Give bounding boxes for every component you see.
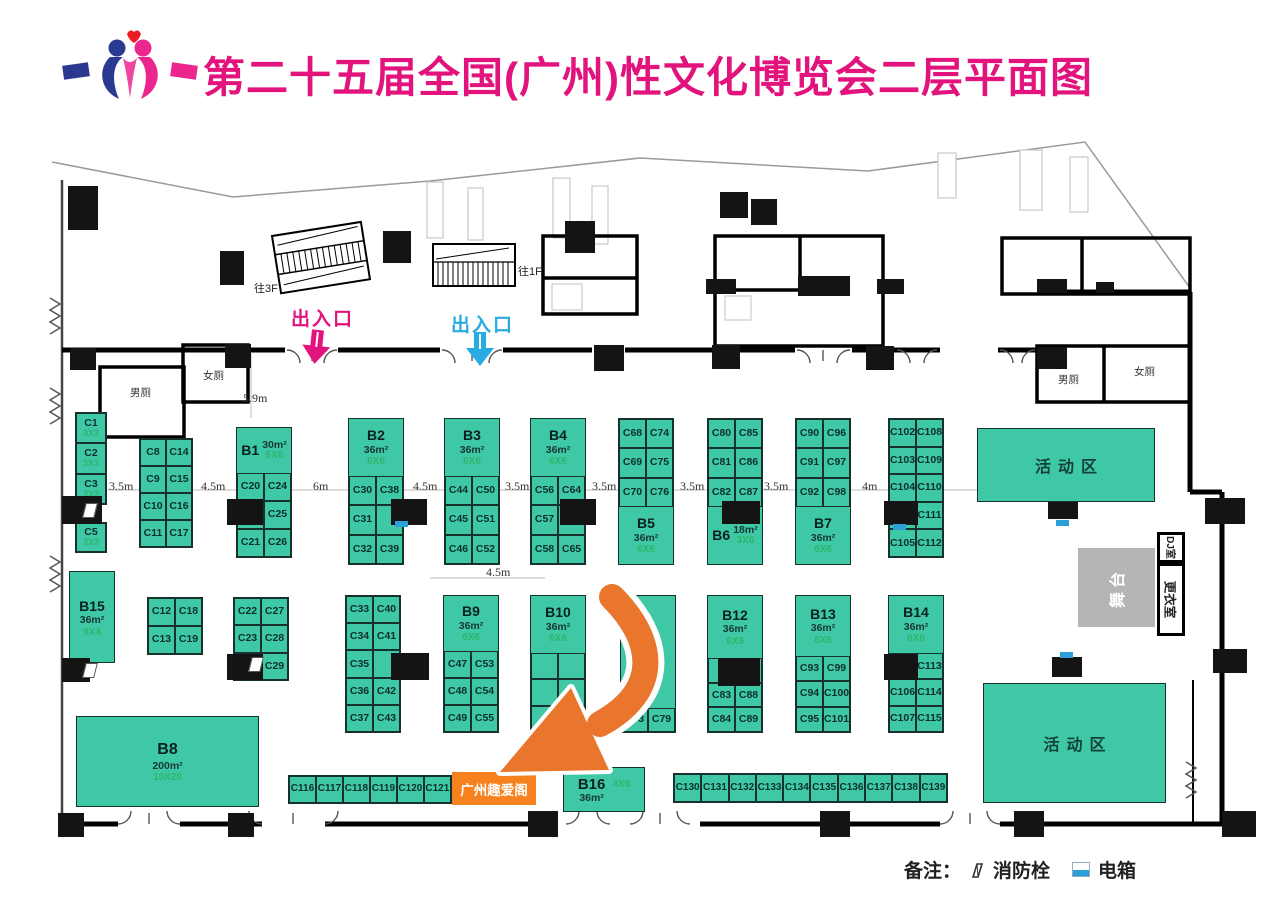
booth-row: C69C75 (619, 448, 673, 477)
booth-C110: C110 (916, 474, 943, 502)
dj-room: DJ室 (1157, 532, 1185, 563)
dimension-label: 3.5m (680, 479, 704, 494)
booth-row: C32C39 (349, 535, 403, 564)
booth-C30: C30 (349, 476, 376, 505)
booth-row: C102C108 (889, 419, 943, 447)
entrance-label-pink: 出入口 (291, 304, 354, 331)
booth-C12: C12 (148, 598, 175, 626)
booth-C117: C117 (316, 776, 343, 803)
changing-room: 更衣室 (1157, 563, 1185, 636)
booth-B11-header: B1172m²12X6 (621, 596, 675, 708)
booth-C20: C20 (237, 473, 264, 501)
booth-row: C70C76 (619, 478, 673, 507)
booth-row: C53X3 (76, 523, 106, 552)
block-rows: C93C99C94C100C95C101 (796, 656, 850, 732)
block-B10: B1036m²6X6 (530, 595, 586, 733)
booth-C90: C90 (796, 419, 823, 448)
booth-C120: C120 (397, 776, 424, 803)
booth-C107: C107 (889, 706, 916, 732)
toilet-male-right: 男厕 (1058, 372, 1079, 387)
booth-row: C23C28 (234, 625, 288, 652)
pillar (1205, 498, 1245, 524)
booth-row: C23X3 (76, 443, 106, 473)
dimension-label: 4.5m (201, 479, 225, 494)
booth-C132: C132 (729, 774, 756, 802)
block-rows: C90C96C91C97C92C98 (796, 419, 850, 507)
logo-ribbon-right (170, 62, 198, 79)
booth-C138: C138 (892, 774, 919, 802)
power-box-mark (395, 521, 408, 527)
pillar (560, 499, 596, 525)
legend-power-label: 电箱 (1098, 856, 1136, 883)
booth-C98: C98 (823, 478, 850, 507)
block-B1: B130m²5X6C20C24C25C21C26 (236, 427, 292, 558)
booth-B14-header: B1436m²6X6 (889, 596, 943, 653)
booth-C76: C76 (646, 478, 673, 507)
booth-row (531, 706, 585, 732)
booth-C112: C112 (916, 529, 943, 557)
booth-C70: C70 (619, 478, 646, 507)
booth-C46: C46 (445, 535, 472, 564)
power-box-mark (893, 524, 906, 530)
booth-C83: C83 (708, 683, 735, 708)
booth-row: C58C65 (531, 535, 585, 564)
booth-empty-cell (531, 706, 558, 732)
pillar (70, 348, 96, 370)
booth-C2: C23X3 (76, 443, 106, 473)
booth-row: C80C85 (708, 419, 762, 448)
booth-empty-cell (531, 679, 558, 705)
stairs-1f (433, 244, 515, 286)
logo-heart (127, 30, 141, 43)
booth-C8: C8 (140, 439, 166, 466)
booth-C96: C96 (823, 419, 850, 448)
pillar (722, 501, 760, 524)
booth-C79: C79 (648, 708, 675, 732)
pillar (1014, 811, 1044, 837)
booth-C133: C133 (756, 774, 783, 802)
booth-row: C90C96 (796, 419, 850, 448)
booth-C1: C13X3 (76, 413, 106, 443)
qag-booth: 广州趣爱阁 (452, 772, 536, 805)
booth-C91: C91 (796, 448, 823, 477)
booth-row: C105C112 (889, 529, 943, 557)
block-B9: B936m²6X6C47C53C48C54C49C55 (443, 595, 499, 733)
pillar (712, 345, 740, 369)
entrance-arrow-blue-icon (466, 332, 494, 366)
stage: 舞台 (1078, 548, 1155, 627)
booth-C88: C88 (735, 683, 762, 708)
booth-C23: C23 (234, 625, 261, 652)
block-c1-col: C13X3C23X3C33X3 (75, 412, 107, 505)
booth-C33: C33 (346, 596, 373, 623)
booth-B2-header: B236m²6X6 (349, 419, 403, 476)
booth-C50: C50 (472, 476, 499, 505)
block-rows: C13X3C23X3C33X3 (76, 413, 106, 504)
booth-C135: C135 (810, 774, 837, 802)
booth-B1-header: B130m²5X6 (237, 428, 291, 473)
pillar (884, 654, 918, 680)
booth-row: C48C54 (444, 678, 498, 705)
stairs-1f-label: 往1F (518, 263, 542, 279)
block-B13: B1336m²6X6C93C99C94C100C95C101 (795, 595, 851, 733)
booth-row: C9C15 (140, 466, 192, 493)
dimension-label: 3.5m (764, 479, 788, 494)
pillar (1222, 811, 1256, 837)
booth-C42: C42 (373, 678, 400, 705)
legend: 备注： 消防栓 电箱 (904, 856, 1136, 883)
fire-hydrant-mark (82, 663, 98, 678)
entrance-label-blue: 出入口 (451, 310, 514, 337)
booth-C31: C31 (349, 505, 376, 534)
booth-row: C33C40 (346, 596, 400, 623)
pillar (227, 499, 263, 525)
pillar (720, 192, 748, 218)
booth-row: C10C16 (140, 493, 192, 520)
booth-C113: C113 (916, 653, 943, 679)
booth-C109: C109 (916, 447, 943, 475)
booth-C131: C131 (701, 774, 728, 802)
dimension-label: 4m (862, 479, 877, 494)
booth-row: C20C24 (237, 473, 291, 501)
booth-strip-1: C130C131C132C133C134C135C136C137C138C139 (673, 773, 948, 803)
pillar (877, 279, 904, 294)
pillar (706, 279, 736, 294)
booth-C102: C102 (889, 419, 916, 447)
block-rows: C80C85C81C86C82C87 (708, 419, 762, 507)
toilet-female-right: 女厕 (1134, 364, 1155, 379)
booth-C134: C134 (783, 774, 810, 802)
block-B2: B236m²6X6C30C38C31C32C39 (348, 418, 404, 565)
booth-C95: C95 (796, 707, 823, 732)
booth-C43: C43 (373, 705, 400, 732)
logo-figures (102, 30, 158, 99)
duct-shapes (427, 150, 1088, 244)
block-B4: B436m²6X6C56C64C57C58C65 (530, 418, 586, 565)
block-B7: C90C96C91C97C92C98B736m²6X6 (795, 418, 851, 565)
activity-area-top: 活动区 (977, 428, 1155, 502)
booth-C80: C80 (708, 419, 735, 448)
booth-C105: C105 (889, 529, 916, 557)
block-rows (531, 653, 585, 732)
dimension-label: 4.5m (413, 479, 437, 494)
booth-C26: C26 (264, 529, 291, 557)
booth-row: C37C43 (346, 705, 400, 732)
block-c8-blk: C8C14C9C15C10C16C11C17 (139, 438, 193, 548)
stairs-3f-label: 往3F (254, 280, 278, 296)
booth-C108: C108 (916, 419, 943, 447)
block-rows: C44C50C45C51C46C52 (445, 476, 499, 564)
power-box-mark (1060, 652, 1073, 658)
booth-row: C34C41 (346, 623, 400, 650)
pillar (1213, 649, 1247, 673)
booth-C58: C58 (531, 535, 558, 564)
booth-C116: C116 (289, 776, 316, 803)
booth-C139: C139 (920, 774, 947, 802)
booth-B15-header: B1536m²9X4 (70, 572, 114, 664)
booth-C52: C52 (472, 535, 499, 564)
booth-C19: C19 (175, 626, 202, 654)
booth-C41: C41 (373, 623, 400, 650)
booth-empty-cell (558, 706, 585, 732)
booth-C121: C121 (424, 776, 451, 803)
booth-C100: C100 (823, 681, 850, 706)
block-B5: C68C74C69C75C70C76B536m²6X6 (618, 418, 674, 565)
booth-row: C95C101 (796, 707, 850, 732)
booth-row: C13C19 (148, 626, 202, 654)
pillar (594, 345, 624, 371)
pillar (225, 344, 251, 368)
booth-row: C103C109 (889, 447, 943, 475)
booth-C16: C16 (166, 493, 192, 520)
booth-C27: C27 (261, 598, 288, 625)
booth-C118: C118 (343, 776, 370, 803)
pillar (1096, 282, 1114, 293)
dimension-label: 6m (313, 479, 328, 494)
block-B11: B1172m²12X6C73C79 (620, 595, 676, 733)
pillar (866, 346, 894, 370)
booth-row: C92C98 (796, 478, 850, 507)
booth-C39: C39 (376, 535, 403, 564)
booth-row: C83C88 (708, 683, 762, 708)
booth-C18: C18 (175, 598, 202, 626)
stairs-3f (272, 222, 370, 293)
pillar (383, 231, 411, 263)
booth-C44: C44 (445, 476, 472, 505)
pillar (820, 811, 850, 837)
booth-C55: C55 (471, 705, 498, 732)
booth-row: C21C26 (237, 529, 291, 557)
booth-B4-header: B436m²6X6 (531, 419, 585, 476)
booth-row: C93C99 (796, 656, 850, 681)
booth-row: C84C89 (708, 707, 762, 732)
corridor-door-arcs (287, 350, 1035, 363)
booth-C53: C53 (471, 651, 498, 678)
block-c12-blk: C12C18C13C19 (147, 597, 203, 655)
booth-row: C12C18 (148, 598, 202, 626)
booth-C89: C89 (735, 707, 762, 732)
block-B16: B1636m²4X9 (563, 767, 645, 812)
booth-B3-header: B336m²6X6 (445, 419, 499, 476)
booth-row: C106C114 (889, 679, 943, 705)
booth-row: C81C86 (708, 448, 762, 477)
dimension-label: 3.5m (592, 479, 616, 494)
booth-C114: C114 (916, 679, 943, 705)
block-c5: C53X3 (75, 522, 107, 553)
booth-C35: C35 (346, 650, 373, 677)
booth-C99: C99 (823, 656, 850, 681)
toilet-female-left: 女厕 (203, 368, 224, 383)
booth-C84: C84 (708, 707, 735, 732)
booth-C137: C137 (865, 774, 892, 802)
block-B8: B8200m²10X20 (76, 716, 259, 807)
pillar (220, 251, 244, 285)
booth-C28: C28 (261, 625, 288, 652)
booth-C15: C15 (166, 466, 192, 493)
booth-row: C11C17 (140, 520, 192, 547)
booth-B16-header: B1636m²4X9 (564, 768, 644, 813)
block-B15: B1536m²9X4 (69, 571, 115, 663)
dimension-label: 5.9m (243, 391, 267, 406)
booth-C17: C17 (166, 520, 192, 547)
booth-C93: C93 (796, 656, 823, 681)
booth-C74: C74 (646, 419, 673, 448)
booth-C25: C25 (264, 501, 291, 529)
booth-C101: C101 (823, 707, 850, 732)
booth-row: C104C110 (889, 474, 943, 502)
booth-C45: C45 (445, 505, 472, 534)
dimension-label: 4.5m (486, 565, 510, 580)
service-rooms (543, 236, 1190, 346)
fire-hydrant-icon (969, 861, 985, 879)
dimension-label: 3.5m (505, 479, 529, 494)
booth-C13: C13 (148, 626, 175, 654)
pillar (1048, 500, 1078, 519)
booth-C115: C115 (916, 706, 943, 732)
booth-C36: C36 (346, 678, 373, 705)
booth-C119: C119 (370, 776, 397, 803)
booth-C81: C81 (708, 448, 735, 477)
booth-row: C46C52 (445, 535, 499, 564)
booth-B13-header: B1336m²6X6 (796, 596, 850, 656)
booth-empty-cell (558, 653, 585, 679)
booth-C34: C34 (346, 623, 373, 650)
booth-C73: C73 (621, 708, 648, 732)
block-rows: C102C108C103C109C104C110C111C105C112 (889, 419, 943, 557)
booth-B12-header: B1236m²6X6 (708, 596, 762, 658)
booth-row (531, 679, 585, 705)
booth-row: C22C27 (234, 598, 288, 625)
block-rows: C8C14C9C15C10C16C11C17 (140, 439, 192, 547)
booth-C97: C97 (823, 448, 850, 477)
booth-row: C8C14 (140, 439, 192, 466)
booth-B10-header: B1036m²6X6 (531, 596, 585, 653)
booth-C11: C11 (140, 520, 166, 547)
block-c102-blk: C102C108C103C109C104C110C111C105C112 (888, 418, 944, 558)
pillar (884, 501, 918, 525)
booth-C14: C14 (166, 439, 192, 466)
booth-empty-cell (558, 679, 585, 705)
activity-area-bottom: 活动区 (983, 683, 1166, 803)
booth-C10: C10 (140, 493, 166, 520)
booth-C68: C68 (619, 419, 646, 448)
block-rows: C68C74C69C75C70C76 (619, 419, 673, 507)
booth-row: C36C42 (346, 678, 400, 705)
booth-C47: C47 (444, 651, 471, 678)
toilet-male-left: 男厕 (130, 385, 151, 400)
booth-C57: C57 (531, 505, 558, 534)
dimension-label: 3.5m (109, 479, 133, 494)
pillar (68, 186, 98, 230)
booth-C65: C65 (558, 535, 585, 564)
booth-C130: C130 (674, 774, 701, 802)
booth-row: C13X3 (76, 413, 106, 443)
booth-C85: C85 (735, 419, 762, 448)
pillar (228, 813, 254, 837)
booth-C21: C21 (237, 529, 264, 557)
booth-C37: C37 (346, 705, 373, 732)
booth-row: C91C97 (796, 448, 850, 477)
booth-C29: C29 (261, 653, 288, 680)
pillar (391, 653, 429, 680)
booth-row: C68C74 (619, 419, 673, 448)
booth-B5-header: B536m²6X6 (619, 507, 673, 564)
booth-C24: C24 (264, 473, 291, 501)
block-rows: C53X3 (76, 523, 106, 552)
block-rows: C73C79 (621, 708, 675, 732)
legend-note-label: 备注： (904, 856, 961, 883)
block-B6: C80C85C81C86C82C87B618m²3X6 (707, 418, 763, 565)
pillar (751, 199, 777, 225)
pillar (528, 811, 558, 837)
booth-C48: C48 (444, 678, 471, 705)
block-rows: C47C53C48C54C49C55 (444, 651, 498, 732)
booth-row: C94C100 (796, 681, 850, 706)
booth-B9-header: B936m²6X6 (444, 596, 498, 651)
booth-row: C44C50 (445, 476, 499, 505)
booth-B8-header: B8200m²10X20 (77, 717, 258, 808)
page-title: 第二十五届全国(广州)性文化博览会二层平面图 (203, 44, 1193, 105)
booth-C136: C136 (838, 774, 865, 802)
booth-C94: C94 (796, 681, 823, 706)
booth-row: C45C51 (445, 505, 499, 534)
booth-C75: C75 (646, 448, 673, 477)
booth-C54: C54 (471, 678, 498, 705)
booth-row: C49C55 (444, 705, 498, 732)
booth-C92: C92 (796, 478, 823, 507)
booth-row: C47C53 (444, 651, 498, 678)
block-B3: B336m²6X6C44C50C45C51C46C52 (444, 418, 500, 565)
power-box-icon (1072, 862, 1090, 877)
booth-C22: C22 (234, 598, 261, 625)
booth-C32: C32 (349, 535, 376, 564)
booth-C69: C69 (619, 448, 646, 477)
pillar (1037, 347, 1067, 369)
booth-C104: C104 (889, 474, 916, 502)
booth-C9: C9 (140, 466, 166, 493)
floorplan-page: 第二十五届全国(广州)性文化博览会二层平面图 (0, 0, 1280, 900)
booth-row: C107C115 (889, 706, 943, 732)
booth-row (531, 653, 585, 679)
booth-B7-header: B736m²6X6 (796, 507, 850, 564)
booth-C86: C86 (735, 448, 762, 477)
booth-C51: C51 (472, 505, 499, 534)
entrance-arrow-pink-icon (301, 329, 332, 366)
booth-C56: C56 (531, 476, 558, 505)
booth-C40: C40 (373, 596, 400, 623)
booth-row: C73C79 (621, 708, 675, 732)
block-rows: C12C18C13C19 (148, 598, 202, 654)
pillar (58, 813, 84, 837)
booth-C111: C111 (916, 502, 943, 530)
pillar (798, 276, 850, 296)
booth-C5: C53X3 (76, 523, 106, 552)
pillar (1037, 279, 1067, 293)
pillar (1052, 657, 1082, 677)
booth-empty-cell (531, 653, 558, 679)
pillar (565, 221, 595, 253)
booth-strip-0: C116C117C118C119C120C121 (288, 775, 452, 804)
booth-C49: C49 (444, 705, 471, 732)
booth-C103: C103 (889, 447, 916, 475)
logo-ribbon-left (62, 62, 90, 79)
booth-C106: C106 (889, 679, 916, 705)
pillar (718, 658, 760, 686)
legend-hydrant-label: 消防栓 (993, 856, 1050, 883)
power-box-mark (1056, 520, 1069, 526)
